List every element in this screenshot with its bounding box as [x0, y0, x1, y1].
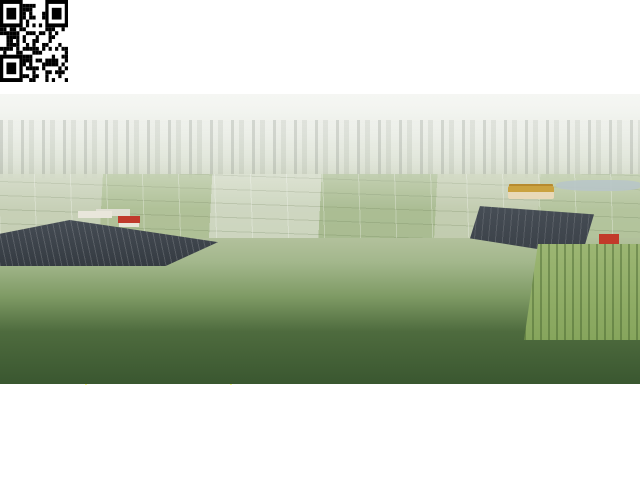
aerial-photo — [0, 94, 640, 384]
distant-pond — [556, 180, 640, 191]
land-listing-image: 1.38 กม. ถ. พุทธมณฑลสาย 4 ถ. ตัดใหม่ พรา… — [0, 0, 640, 480]
farm-buildings — [78, 211, 112, 218]
foreground-palm-trees — [0, 252, 640, 384]
red-roof-house-left — [118, 216, 140, 223]
red-roof-house-right — [599, 234, 619, 244]
orange-roof-building — [508, 186, 554, 199]
city-horizon — [0, 120, 640, 178]
